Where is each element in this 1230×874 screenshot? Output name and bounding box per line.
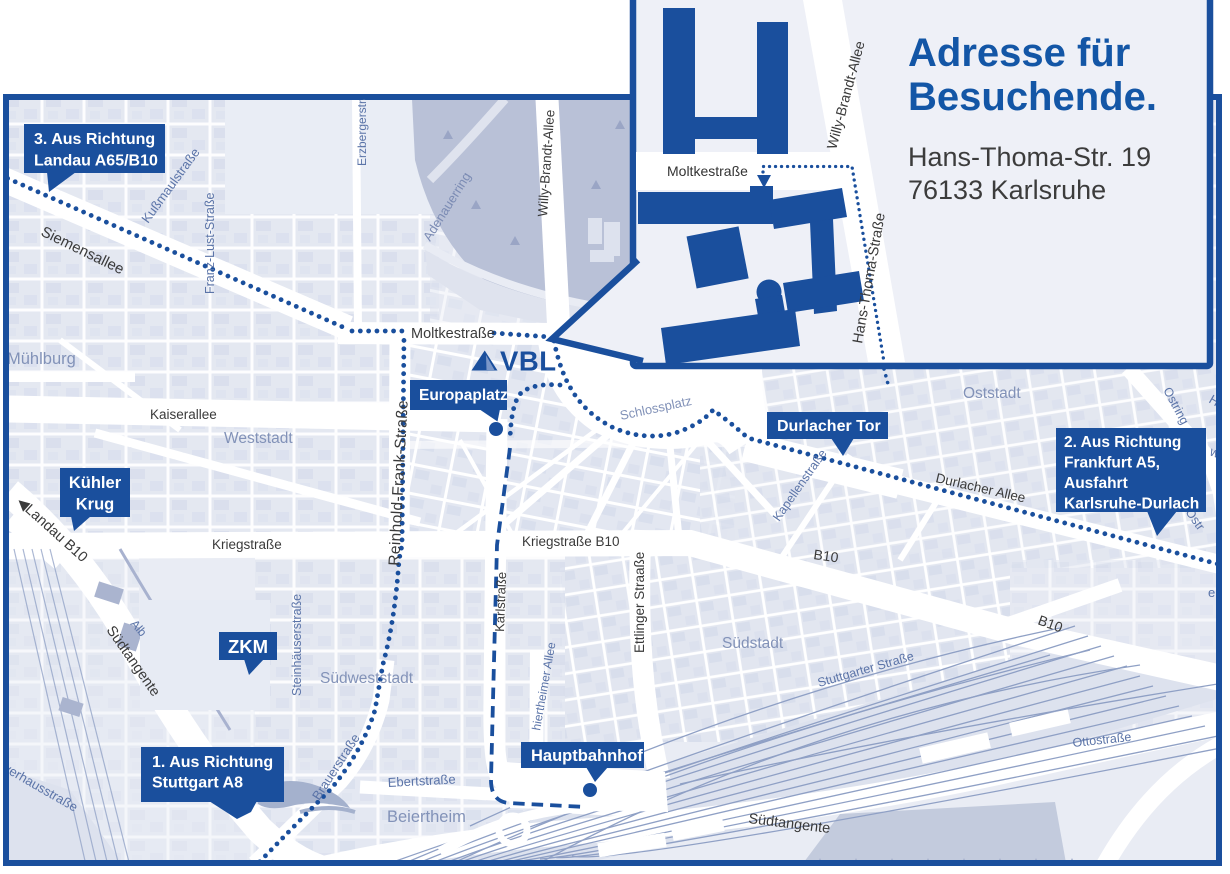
svg-text:Südstadt: Südstadt	[722, 635, 784, 652]
svg-text:Hans-Thoma-Str. 19: Hans-Thoma-Str. 19	[908, 142, 1151, 172]
svg-text:Stuttgart A8: Stuttgart A8	[152, 775, 243, 792]
svg-text:Ausfahrt: Ausfahrt	[1064, 475, 1128, 492]
svg-text:Steinhäuserstraße: Steinhäuserstraße	[290, 594, 304, 696]
svg-text:Kriegstraße: Kriegstraße	[212, 537, 282, 552]
svg-text:Südweststadt: Südweststadt	[320, 670, 414, 687]
svg-text:Durlacher Tor: Durlacher Tor	[777, 418, 881, 435]
svg-text:3. Aus Richtung: 3. Aus Richtung	[34, 131, 155, 148]
svg-text:Kühler: Kühler	[69, 474, 122, 492]
svg-text:Erzbergerstraße: Erzbergerstraße	[355, 79, 369, 166]
svg-text:VBL: VBL	[500, 346, 557, 377]
svg-text:Franz-Lust-Straße: Franz-Lust-Straße	[203, 193, 217, 294]
svg-text:Krug: Krug	[76, 496, 115, 514]
svg-text:Landau A65/B10: Landau A65/B10	[34, 153, 158, 170]
svg-text:Frankfurt A5,: Frankfurt A5,	[1064, 455, 1160, 472]
svg-text:Ettlinger Straaße: Ettlinger Straaße	[632, 552, 647, 653]
svg-text:Karlstraße: Karlstraße	[492, 572, 509, 632]
svg-text:Hauptbahnhof: Hauptbahnhof	[531, 747, 643, 765]
svg-text:Europaplatz: Europaplatz	[419, 387, 508, 404]
svg-text:Karlsruhe-Durlach: Karlsruhe-Durlach	[1064, 496, 1199, 513]
svg-text:76133 Karlsruhe: 76133 Karlsruhe	[908, 175, 1106, 205]
svg-text:ZKM: ZKM	[228, 636, 268, 657]
svg-text:Kriegstraße B10: Kriegstraße B10	[522, 534, 620, 549]
svg-text:Besuchende.: Besuchende.	[908, 75, 1157, 119]
svg-text:Moltkestraße: Moltkestraße	[667, 163, 748, 179]
svg-text:Adresse für: Adresse für	[908, 31, 1130, 75]
svg-text:1. Aus Richtung: 1. Aus Richtung	[152, 754, 273, 771]
svg-text:Kaiserallee: Kaiserallee	[150, 407, 217, 422]
svg-text:Moltkestraße: Moltkestraße	[411, 326, 495, 342]
svg-text:2. Aus Richtung: 2. Aus Richtung	[1064, 434, 1181, 451]
svg-text:Beiertheim: Beiertheim	[387, 808, 466, 826]
svg-text:Weststadt: Weststadt	[224, 430, 293, 447]
svg-text:Mühlburg: Mühlburg	[7, 350, 76, 368]
svg-text:Oststadt: Oststadt	[963, 385, 1021, 402]
